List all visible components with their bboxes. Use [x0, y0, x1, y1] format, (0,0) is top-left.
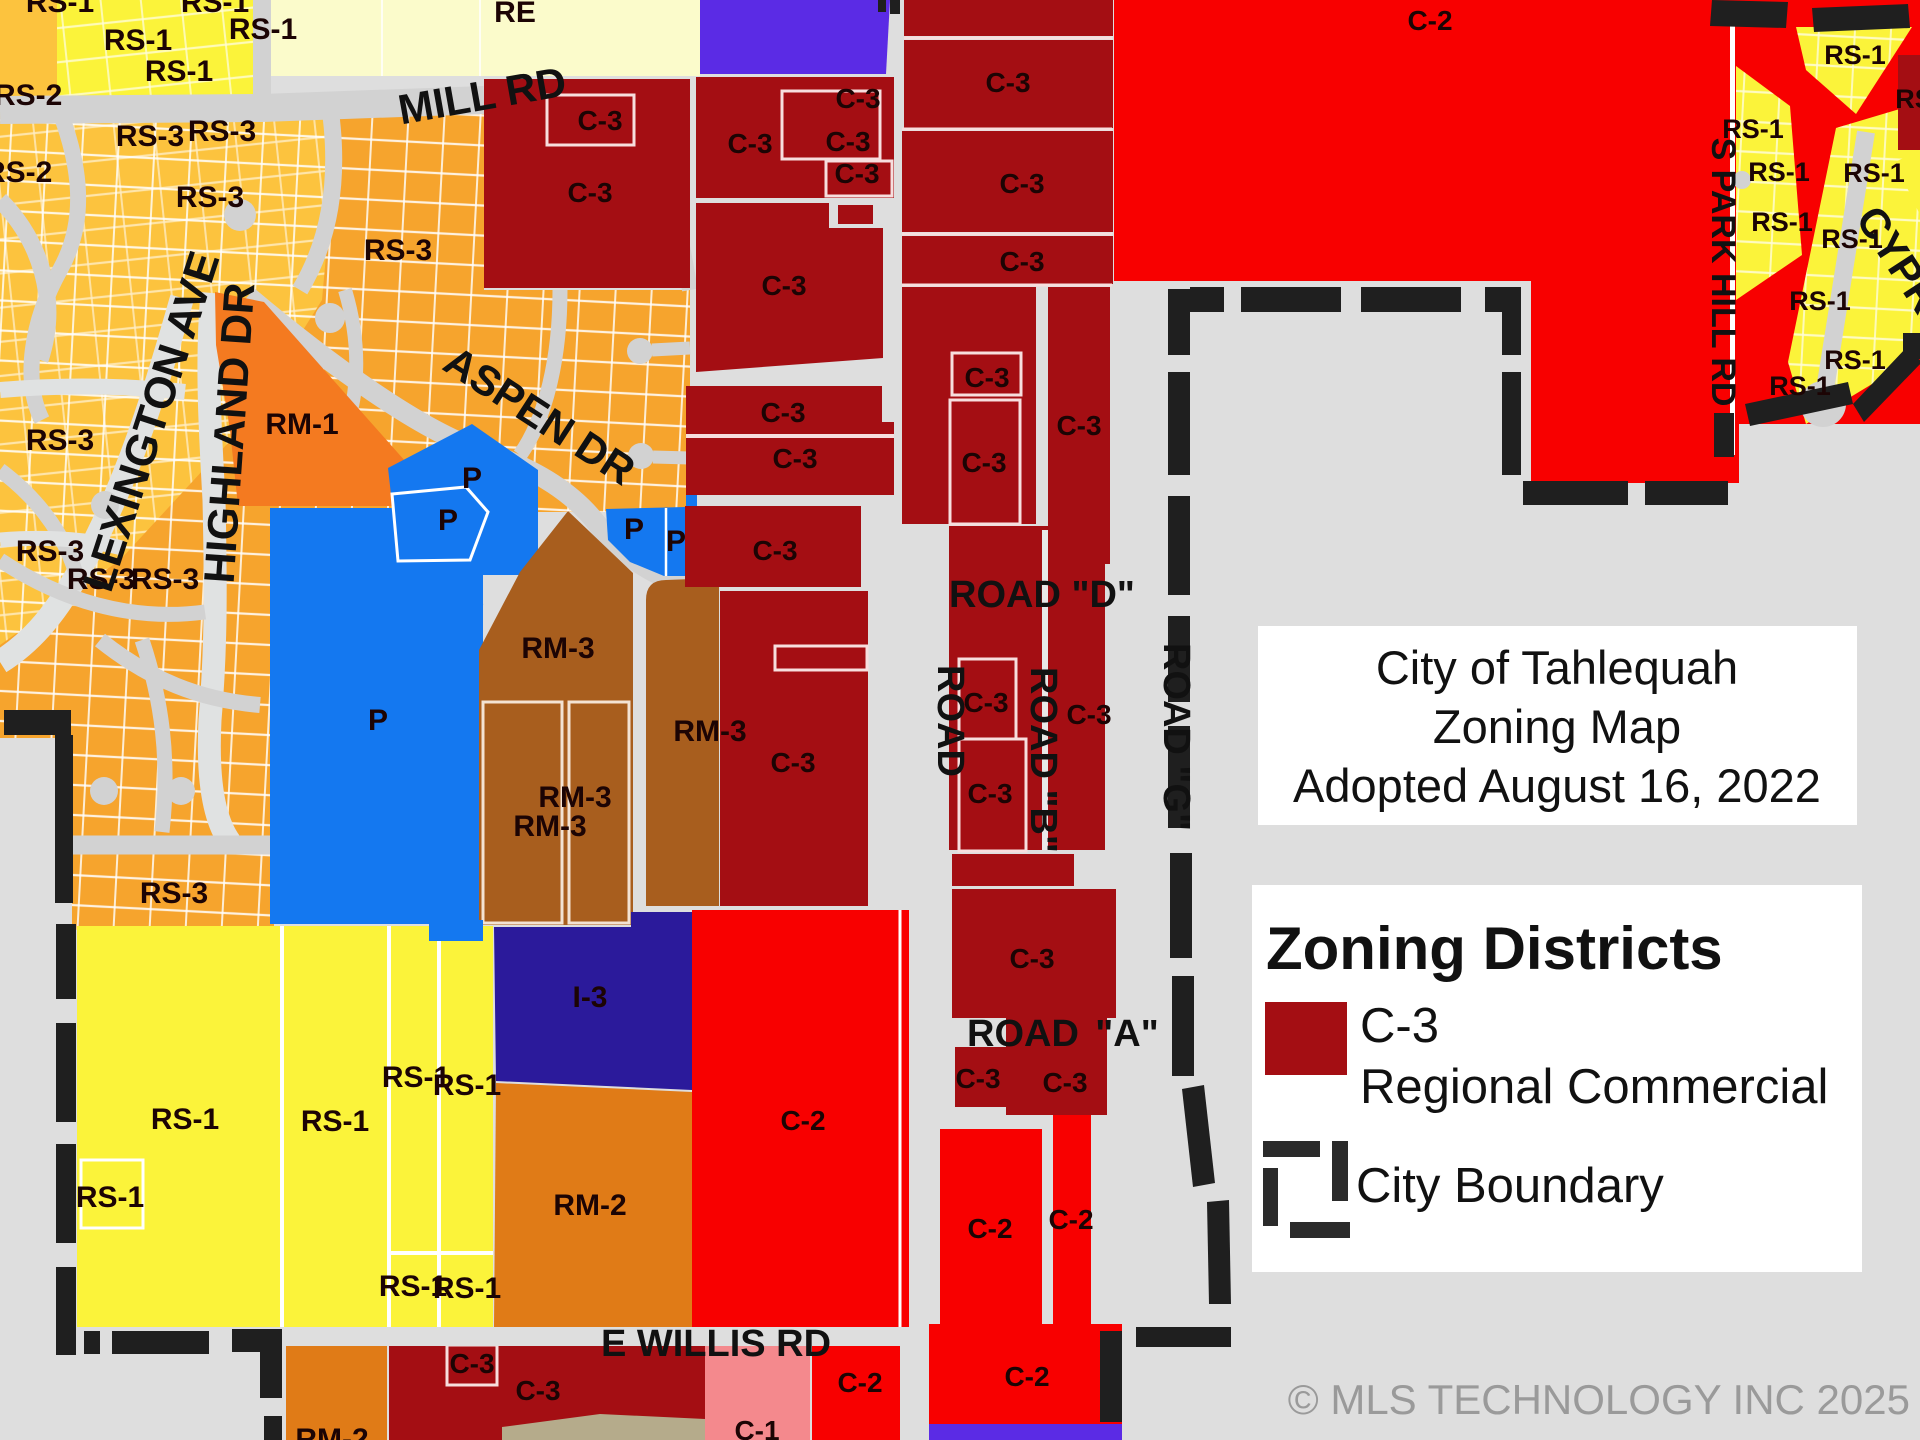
svg-text:RS-1: RS-1 — [433, 1272, 501, 1305]
svg-text:RS-3: RS-3 — [176, 181, 244, 214]
svg-text:C-3: C-3 — [964, 362, 1009, 393]
svg-text:RS-2: RS-2 — [0, 79, 62, 112]
svg-text:RS-1: RS-1 — [181, 0, 249, 19]
svg-text:City of Tahlequah: City of Tahlequah — [1376, 641, 1738, 694]
svg-text:RS-1: RS-1 — [1824, 40, 1886, 70]
svg-text:RM-3: RM-3 — [513, 810, 586, 843]
svg-text:C-3: C-3 — [961, 447, 1006, 478]
svg-text:"A": "A" — [1095, 1013, 1158, 1055]
svg-text:C-3: C-3 — [1056, 410, 1101, 441]
svg-text:RS-3: RS-3 — [26, 424, 94, 457]
svg-text:RS-3: RS-3 — [364, 234, 432, 267]
svg-text:City Boundary: City Boundary — [1356, 1159, 1664, 1213]
svg-text:C-3: C-3 — [999, 246, 1044, 277]
svg-text:ROAD "B": ROAD "B" — [1022, 667, 1064, 853]
svg-text:C-3: C-3 — [1042, 1067, 1087, 1098]
svg-text:P: P — [438, 504, 458, 537]
svg-text:C-3: C-3 — [999, 168, 1044, 199]
svg-text:RS-1: RS-1 — [151, 1103, 219, 1136]
svg-text:RM-2: RM-2 — [295, 1423, 368, 1440]
svg-text:Zoning Map: Zoning Map — [1433, 700, 1681, 753]
svg-text:C-3: C-3 — [835, 83, 880, 114]
svg-text:RS: RS — [1895, 84, 1920, 114]
svg-text:RS-3: RS-3 — [140, 877, 208, 910]
svg-text:ROAD "D": ROAD "D" — [949, 574, 1135, 616]
svg-text:Regional Commercial: Regional Commercial — [1360, 1060, 1828, 1114]
svg-text:C-3: C-3 — [577, 105, 622, 136]
svg-text:Zoning Districts: Zoning Districts — [1266, 915, 1723, 982]
svg-text:RE: RE — [494, 0, 536, 29]
svg-text:RS-3: RS-3 — [131, 563, 199, 596]
svg-text:ROAD: ROAD — [967, 1013, 1079, 1055]
svg-text:Adopted August 16, 2022: Adopted August 16, 2022 — [1293, 759, 1821, 812]
svg-text:P: P — [666, 525, 686, 558]
svg-text:RS-1: RS-1 — [26, 0, 94, 19]
svg-text:C-3: C-3 — [825, 126, 870, 157]
svg-text:C-3: C-3 — [449, 1348, 494, 1379]
svg-text:P: P — [462, 462, 482, 495]
svg-text:RM-2: RM-2 — [553, 1189, 626, 1222]
svg-text:C-2: C-2 — [1004, 1361, 1049, 1392]
svg-text:RM-1: RM-1 — [265, 408, 338, 441]
svg-text:© MLS TECHNOLOGY INC 2025: © MLS TECHNOLOGY INC 2025 — [1288, 1376, 1910, 1423]
svg-text:C-2: C-2 — [837, 1367, 882, 1398]
svg-text:ROAD: ROAD — [929, 665, 971, 777]
svg-text:RM-3: RM-3 — [521, 632, 594, 665]
svg-text:C-3: C-3 — [752, 535, 797, 566]
svg-text:RS-3: RS-3 — [188, 115, 256, 148]
svg-text:RS-1: RS-1 — [1748, 157, 1810, 187]
svg-text:C-3: C-3 — [515, 1375, 560, 1406]
svg-text:C-1: C-1 — [734, 1415, 779, 1440]
svg-text:C-3: C-3 — [1009, 943, 1054, 974]
svg-text:RS-1: RS-1 — [1824, 345, 1886, 375]
svg-text:C-2: C-2 — [780, 1105, 825, 1136]
svg-text:C-3: C-3 — [1066, 699, 1111, 730]
svg-text:RS-1: RS-1 — [433, 1069, 501, 1102]
svg-text:C-3: C-3 — [770, 747, 815, 778]
svg-text:C-3: C-3 — [761, 270, 806, 301]
svg-text:RS-1: RS-1 — [1751, 207, 1813, 237]
svg-text:RS-1: RS-1 — [104, 24, 172, 57]
svg-text:C-2: C-2 — [967, 1213, 1012, 1244]
svg-text:RS-1: RS-1 — [1789, 286, 1851, 316]
svg-text:C-3: C-3 — [727, 128, 772, 159]
svg-text:RS-1: RS-1 — [301, 1105, 369, 1138]
svg-text:C-2: C-2 — [1048, 1204, 1093, 1235]
svg-text:P: P — [368, 704, 388, 737]
svg-text:C-3: C-3 — [772, 443, 817, 474]
svg-text:C-3: C-3 — [834, 158, 879, 189]
svg-text:RS-1: RS-1 — [145, 55, 213, 88]
svg-text:C-3: C-3 — [967, 778, 1012, 809]
svg-text:C-3: C-3 — [985, 67, 1030, 98]
svg-text:C-2: C-2 — [1407, 5, 1452, 36]
svg-text:C-3: C-3 — [760, 397, 805, 428]
svg-text:C-3: C-3 — [955, 1063, 1000, 1094]
svg-text:ROAD "G": ROAD "G" — [1155, 643, 1197, 831]
svg-text:C-3: C-3 — [1360, 999, 1439, 1053]
svg-text:RM-3: RM-3 — [673, 715, 746, 748]
svg-text:P: P — [624, 513, 644, 546]
svg-text:C-3: C-3 — [567, 177, 612, 208]
svg-text:I-3: I-3 — [572, 981, 607, 1014]
svg-text:RS-1: RS-1 — [76, 1181, 144, 1214]
svg-text:RS-1: RS-1 — [1769, 371, 1831, 401]
svg-text:S PARK HILL RD: S PARK HILL RD — [1704, 138, 1742, 407]
svg-text:RS-2: RS-2 — [0, 156, 52, 189]
svg-text:RS-3: RS-3 — [116, 120, 184, 153]
svg-text:RS-1: RS-1 — [1843, 158, 1905, 188]
svg-text:E WILLIS RD: E WILLIS RD — [601, 1323, 831, 1365]
